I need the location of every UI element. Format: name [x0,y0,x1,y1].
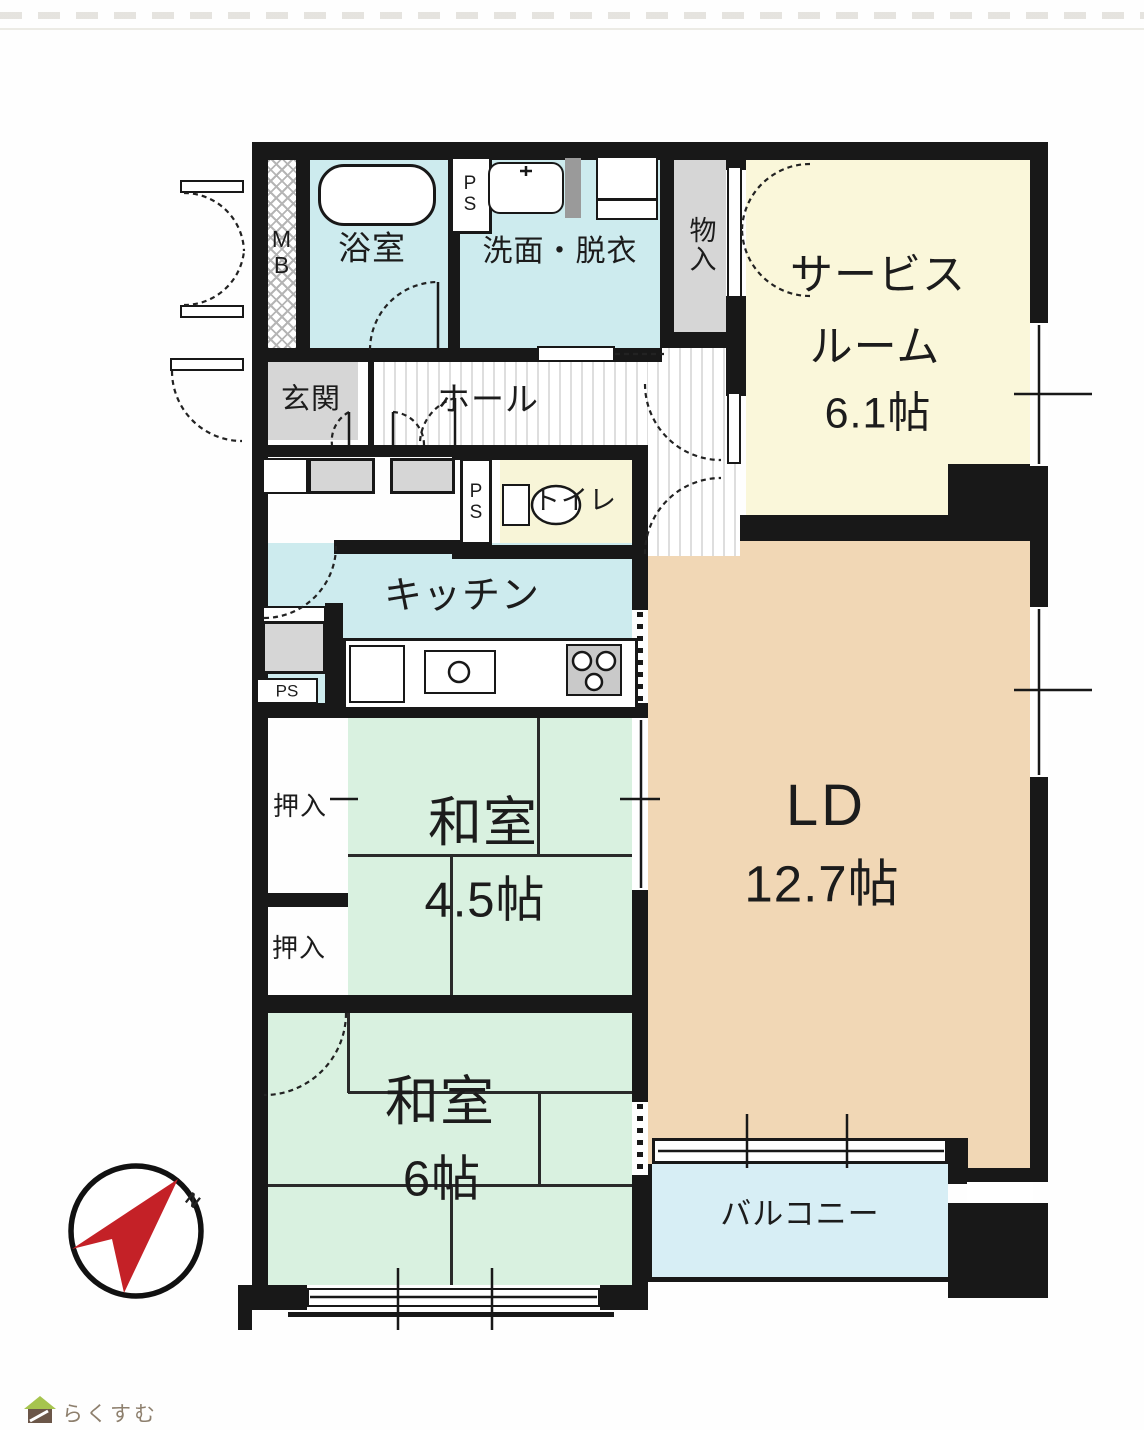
wall-corner-notch [238,1285,252,1330]
label-pipe-space-top: PS [461,173,480,215]
label-storage-top: 物入 [687,216,714,274]
wall-japanese6-bottom-right [600,1285,648,1310]
entrance-closet-b [308,458,375,494]
kitchen-cabinet [349,645,405,703]
wall-washroom-storage [660,158,674,348]
scan-artifact-line [0,28,1144,30]
label-pipe-space-toilet: PS [467,481,486,523]
opening-japanese6-ld [632,1102,648,1175]
label-closet-lower: 押入 [272,935,326,961]
wall-exterior-left [252,160,268,1310]
balcony-edge-bottom [648,1277,950,1282]
label-japanese6-name: 和室 [385,1075,495,1129]
room-living-dining [648,541,1030,1168]
floor-plan: 浴室 洗面・脱衣 物入 サービス ルーム 6.1帖 玄関 ホール トイレ キッチ… [0,0,1144,1430]
fusuma-japanese45-ld [632,718,648,890]
tatami-line [348,854,632,857]
tatami-line [538,1091,541,1187]
washing-machine-pan [596,156,658,220]
mb-door-leaf-top [180,180,244,193]
mb-door-arc-bottom [184,251,244,305]
window-sill-line [288,1312,614,1317]
window-living-dining [1030,607,1048,777]
label-ld-name: LD [786,777,866,835]
label-toilet: トイレ [533,488,617,515]
logo-house-icon [24,1396,56,1424]
window-bottom-right [967,1182,1033,1203]
washing-machine-line [598,198,656,201]
label-meter-box: MB [270,226,293,278]
wall-japanese6-right-upper [632,1013,648,1102]
compass: N [60,1155,216,1311]
scan-artifact-dashes [0,12,1144,19]
wall-entrance-bottom [252,445,464,457]
wall-kitchen-top [334,540,460,554]
label-hall: ホール [437,383,539,416]
wall-closet-separator [252,893,348,907]
kitchen-appliance-space [262,621,326,674]
balcony-edge-left [648,1164,652,1282]
label-closet-upper: 押入 [273,793,327,819]
label-bath: 浴室 [338,232,406,265]
window-balcony-sliding [652,1138,948,1164]
wash-basin [488,162,564,214]
label-balcony: バルコニー [720,1199,879,1230]
wall-japanese45-right [632,890,648,995]
wall-japanese6-bottom-left [252,1285,307,1310]
corridor-door-leaf [727,392,741,464]
label-service-name-2: ルーム [810,327,941,370]
mb-door-leaf-bottom [180,305,244,318]
wall-corridor-right [726,348,746,396]
label-kitchen: キッチン [384,577,540,615]
label-japanese45-size: 4.5帖 [424,877,545,926]
wall-pillar-service-ld [948,464,1032,541]
mb-door-arc-top [184,193,244,251]
wall-entrance-hall [368,358,374,445]
label-entrance: 玄関 [281,386,341,415]
wall-toilet-right [632,458,648,610]
wall-bottom-right-top [948,1168,1048,1182]
washroom-divider [565,158,581,218]
logo-roof [24,1396,56,1409]
wall-japanese6-top [252,995,648,1013]
wall-toilet-bottom [452,545,648,559]
wall-storage-bottom [662,332,746,348]
toilet-tank [502,484,530,526]
sliding-door-washroom [537,346,615,362]
label-washroom: 洗面・脱衣 [483,237,638,267]
label-japanese45-name: 和室 [428,796,538,850]
tatami-line [347,1013,350,1093]
kitchen-sink [424,650,496,694]
label-service-name-1: サービス [790,255,966,298]
service-door-leaf [727,166,742,298]
kitchen-stove [566,644,622,696]
window-service-room [1030,323,1048,466]
wall-mb-bath [296,158,310,360]
entrance-closet-a [262,458,308,494]
entrance-door-arc [172,371,242,441]
window-japanese6-sliding [307,1288,600,1307]
label-ld-size: 12.7帖 [744,859,899,910]
label-japanese6-size: 6帖 [403,1156,481,1205]
entrance-door-leaf [170,358,244,371]
wall-kitchen-left-col [325,603,343,710]
label-pipe-space-kitchen: PS [276,683,299,700]
label-service-size: 6.1帖 [825,393,932,436]
logo-text: らくすむ [62,1398,158,1428]
wall-bottom-right-mass [948,1203,1048,1298]
entrance-closet-c [390,458,455,494]
bathtub [318,164,436,226]
